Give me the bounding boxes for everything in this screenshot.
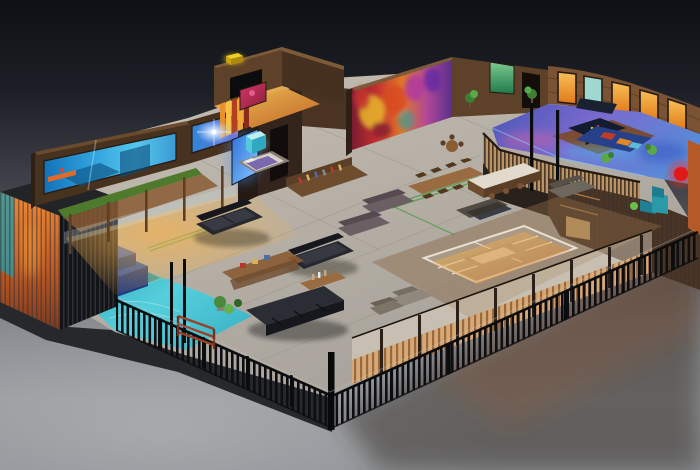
console-box — [252, 259, 258, 264]
tall-pole — [170, 262, 173, 344]
console-box — [240, 263, 246, 268]
mural-wall-edge — [346, 88, 352, 156]
tall-pole — [183, 259, 186, 343]
stool — [517, 183, 523, 189]
floorplan-svg — [0, 0, 700, 470]
pink-artwork-spot — [249, 90, 255, 96]
stool — [503, 188, 509, 194]
green-artwork — [490, 62, 514, 94]
wall-edge — [31, 152, 35, 209]
sofa-shadow — [194, 229, 270, 247]
yellow-rooftop-box — [223, 53, 245, 65]
aquarium-dot — [60, 168, 64, 172]
console-box — [264, 255, 270, 260]
floorplan-render — [0, 0, 700, 470]
orange-lit-wall — [688, 140, 700, 235]
